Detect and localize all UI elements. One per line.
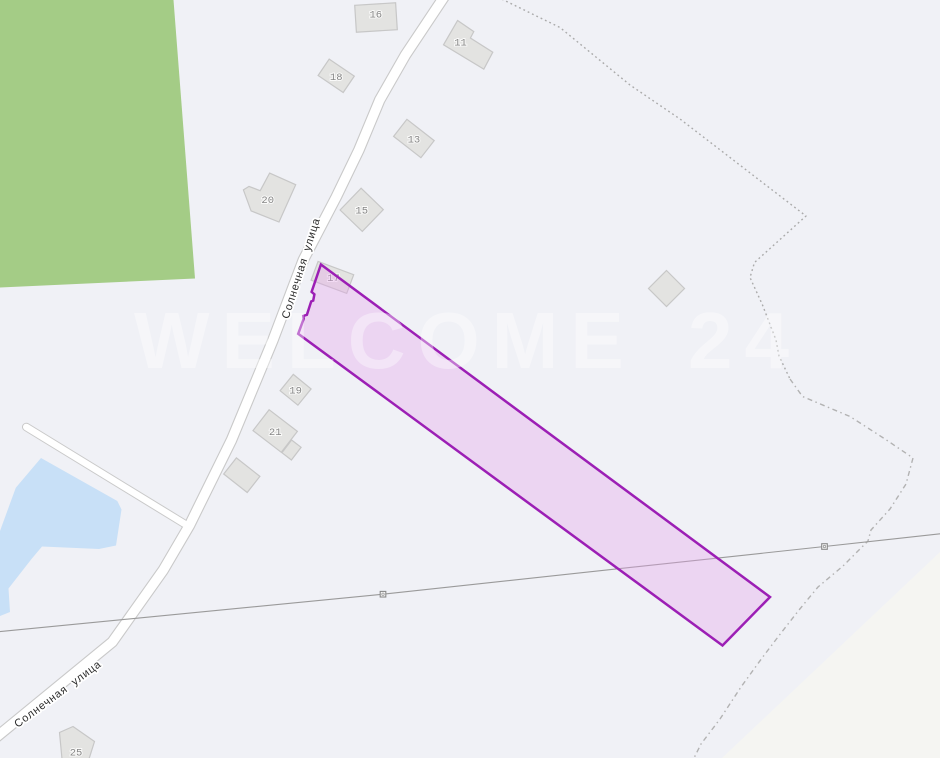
svg-text:15: 15 xyxy=(355,206,368,218)
svg-text:13: 13 xyxy=(408,135,421,147)
svg-text:21: 21 xyxy=(269,427,282,439)
svg-text:11: 11 xyxy=(454,38,467,50)
svg-text:25: 25 xyxy=(70,748,83,758)
svg-text:20: 20 xyxy=(261,195,274,207)
svg-text:18: 18 xyxy=(330,72,343,84)
svg-text:19: 19 xyxy=(289,386,302,398)
svg-text:WELCOME 24: WELCOME 24 xyxy=(134,296,801,385)
svg-text:16: 16 xyxy=(369,9,382,21)
